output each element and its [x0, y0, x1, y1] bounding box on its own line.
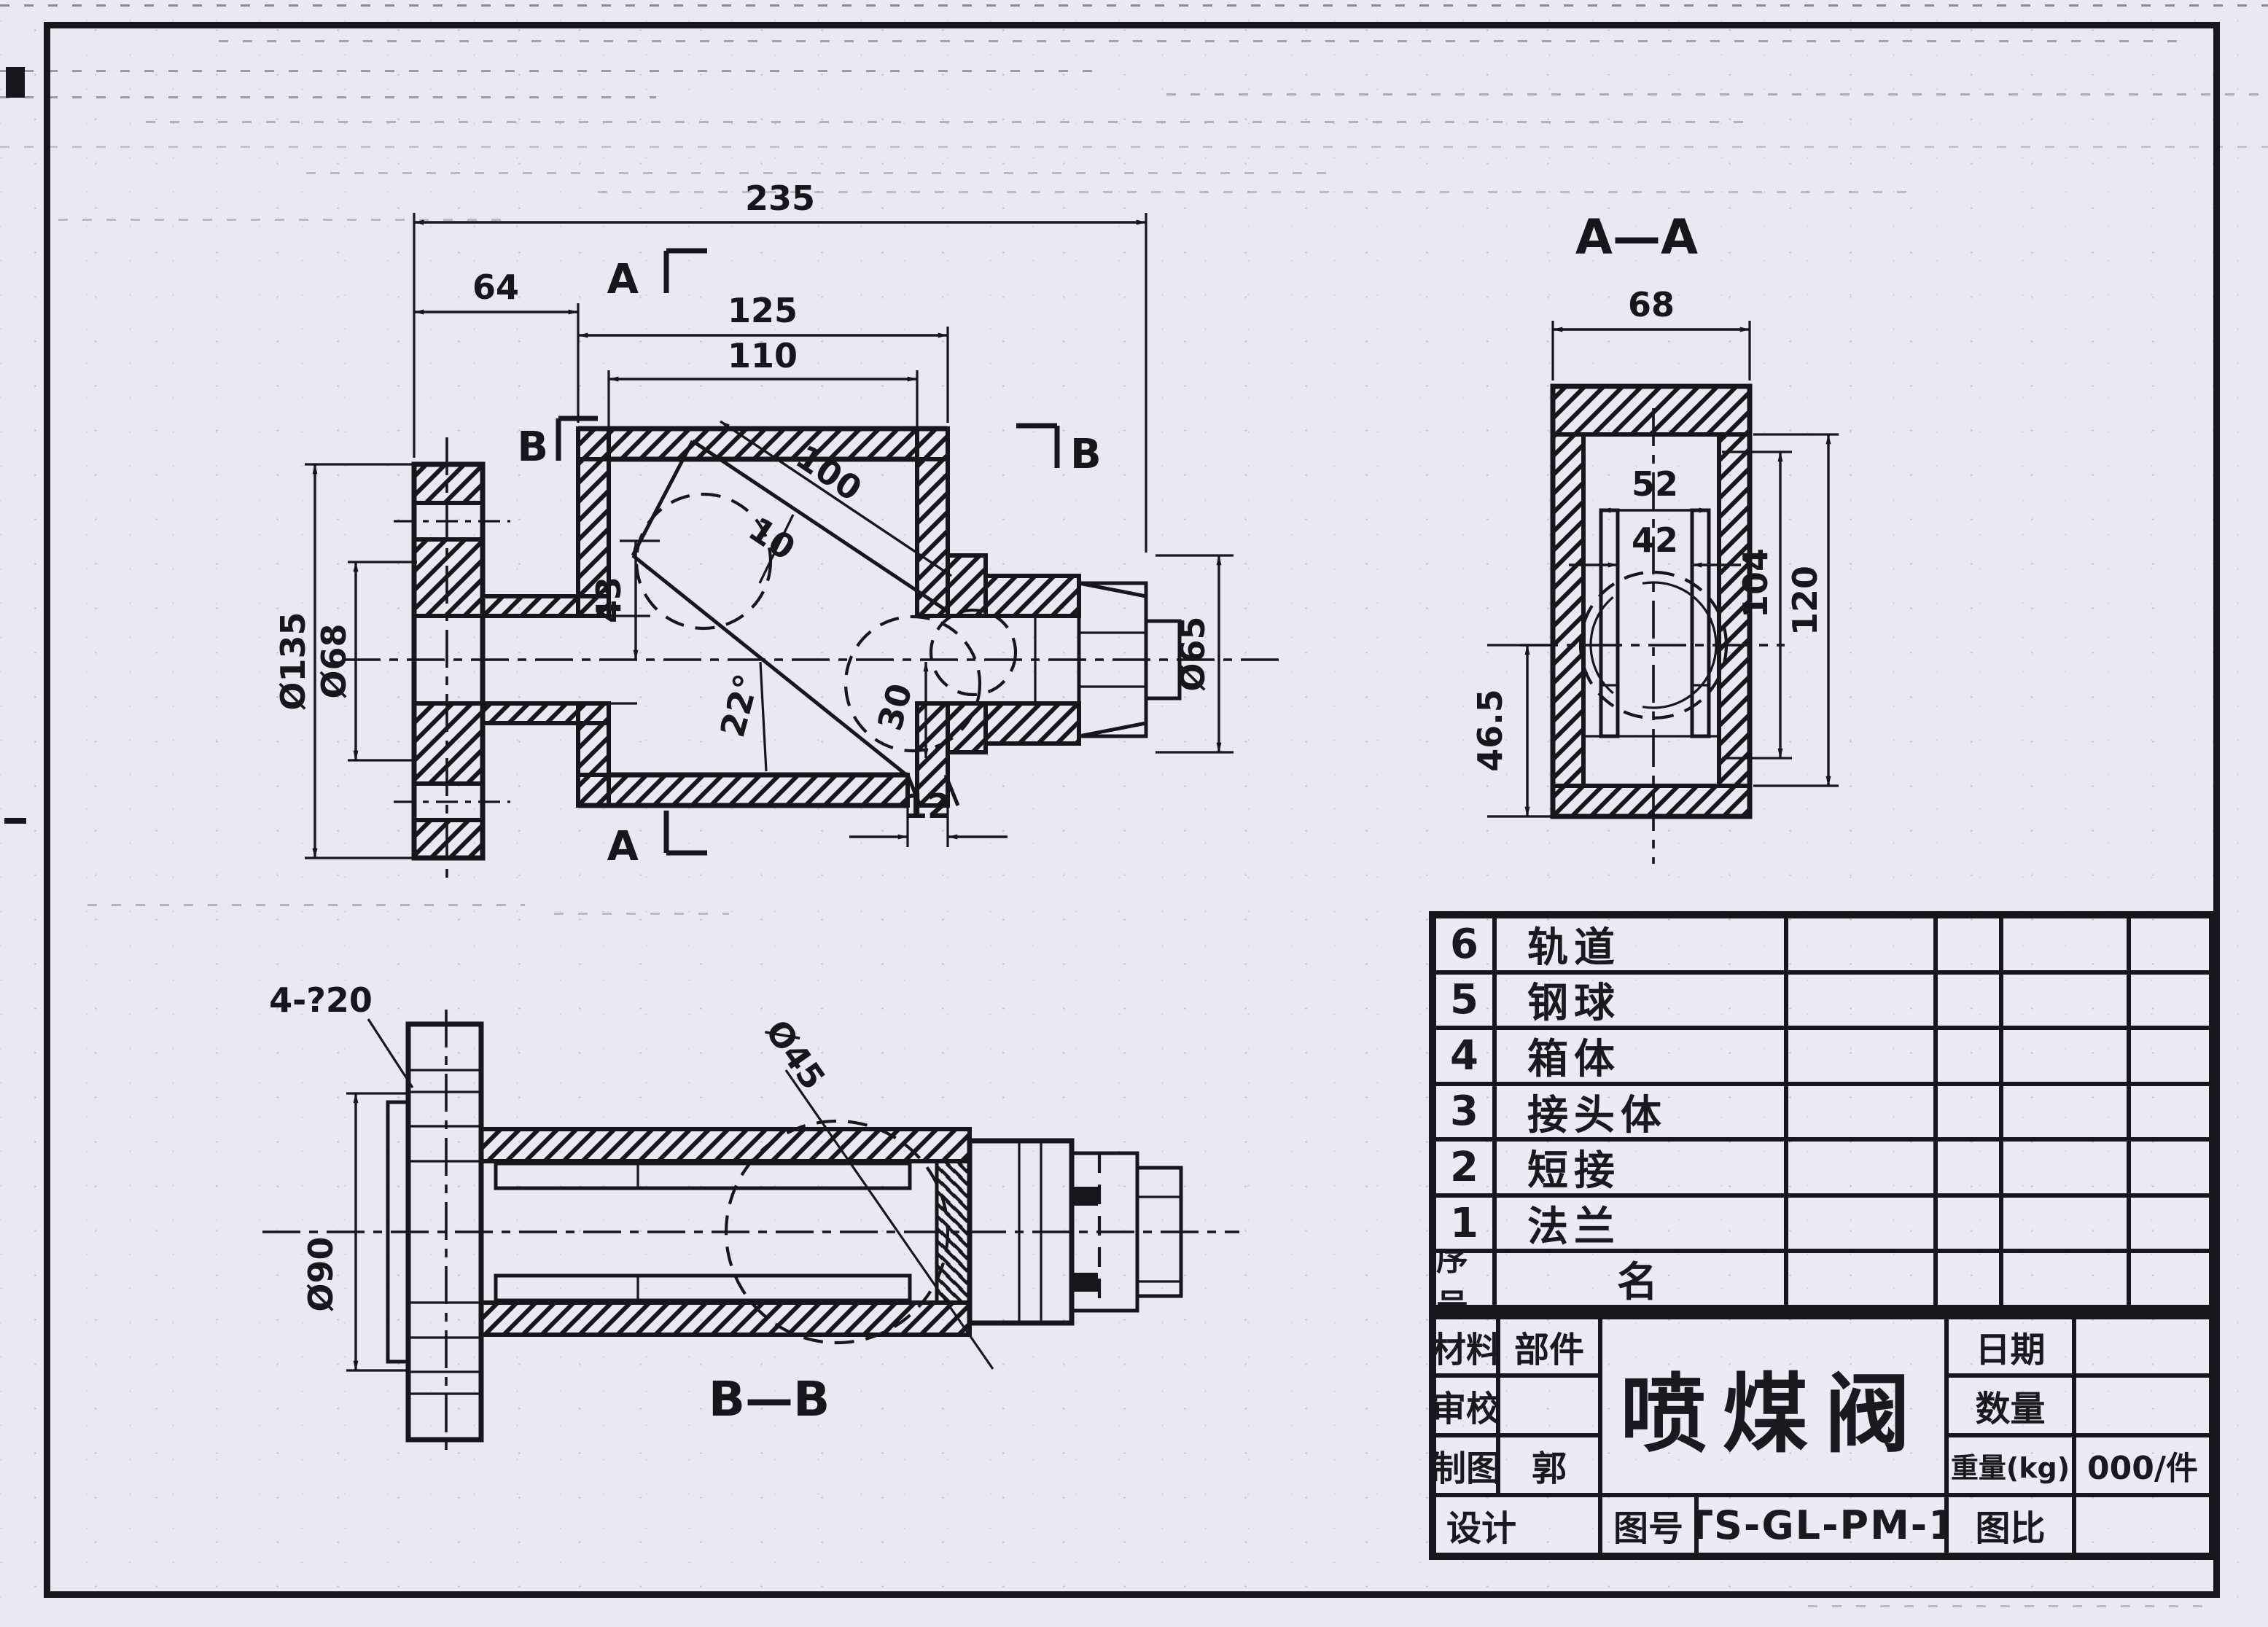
- label-drawn: 制图: [1434, 1435, 1498, 1495]
- marker-a-top: A: [607, 256, 639, 303]
- empty-cell: [1936, 972, 2001, 1029]
- empty-cell: [1786, 1028, 1936, 1084]
- empty-cell: [2001, 1195, 2129, 1252]
- empty-cell: [1786, 916, 1936, 972]
- callout-bolts: 4-?20: [269, 980, 373, 1020]
- aa-section-view: A—A 68: [1470, 209, 1839, 864]
- label-date: 日期: [1946, 1317, 2074, 1376]
- part-name: 钢球: [1495, 972, 1786, 1029]
- value-weight: 000/件: [2074, 1435, 2211, 1495]
- empty-cell: [1936, 1251, 2001, 1307]
- part-no: 1: [1434, 1195, 1495, 1252]
- value-scale: [2074, 1495, 2211, 1555]
- ball-seat-crosshatch: [937, 1161, 970, 1303]
- label-scale: 图比: [1946, 1495, 2074, 1555]
- dim-seat: Ø45: [757, 1013, 833, 1096]
- part-name: 短接: [1495, 1139, 1786, 1195]
- empty-cell: [2001, 1251, 2129, 1307]
- dim-exit-width: 12: [904, 787, 951, 826]
- dim-aa-width: 68: [1628, 285, 1675, 324]
- drawing-title: 喷煤阀: [1600, 1317, 1946, 1495]
- empty-cell: [2129, 1139, 2211, 1195]
- empty-cell: [2001, 1028, 2129, 1084]
- empty-cell: [1936, 916, 2001, 972]
- empty-cell: [2001, 972, 2129, 1029]
- label-design: 设计: [1434, 1495, 1600, 1555]
- bb-section-view: B—B 4-?20 Ø90: [262, 980, 1239, 1454]
- empty-cell: [2001, 1084, 2129, 1140]
- dim-drop: 43: [589, 577, 628, 623]
- part-no: 6: [1434, 916, 1495, 972]
- dim-aa-ball: 42: [1632, 520, 1678, 560]
- label-weight: 重量(kg): [1946, 1435, 2074, 1495]
- value-quantity: [2074, 1376, 2211, 1435]
- parts-list-table: 6 轨道 5 钢球 4 箱体 3 接头体 2 短接 1 法兰 序号 名: [1429, 911, 2216, 1312]
- empty-cell: [1936, 1195, 2001, 1252]
- connector-section: [948, 555, 1180, 752]
- dim-box-inner: 110: [728, 336, 798, 375]
- empty-cell: [2129, 1028, 2211, 1084]
- empty-cell: [2129, 1195, 2211, 1252]
- part-name: 接头体: [1495, 1084, 1786, 1140]
- label-quantity: 数量: [1946, 1376, 2074, 1435]
- empty-cell: [1786, 1195, 1936, 1252]
- empty-cell: [1786, 1084, 1936, 1140]
- marker-b-right: B: [1070, 431, 1102, 478]
- label-dwg-no: 图号: [1600, 1495, 1696, 1555]
- empty-cell: [1786, 972, 1936, 1029]
- label-material: 材料: [1434, 1317, 1498, 1376]
- flange-section: [414, 464, 483, 858]
- main-section-view: 235 64 125 110 Ø135 Ø68: [273, 179, 1283, 886]
- dim-aa-total-height: 120: [1785, 566, 1825, 636]
- dim-right-od: Ø65: [1173, 616, 1212, 691]
- dim-aa-rail: 52: [1632, 464, 1678, 504]
- part-no: 2: [1434, 1139, 1495, 1195]
- dim-flange-od: Ø135: [273, 612, 313, 710]
- dim-left-offset: 64: [472, 268, 519, 307]
- header-name: 名: [1495, 1251, 1786, 1307]
- ball-position-dashed: [636, 494, 771, 628]
- angle-extension-line: [760, 662, 766, 771]
- empty-cell: [1786, 1251, 1936, 1307]
- value-dwg-no: TS-GL-PM-1: [1696, 1495, 1946, 1555]
- dim-channel-width: 10: [741, 509, 802, 568]
- dim-overall: 235: [745, 179, 815, 218]
- label-component: 部件: [1498, 1317, 1600, 1376]
- dim-aa-inner-height: 104: [1736, 548, 1775, 618]
- empty-cell: [1936, 1028, 2001, 1084]
- part-name: 法兰: [1495, 1195, 1786, 1252]
- header-no: 序号: [1434, 1251, 1495, 1307]
- dim-box-outer: 125: [728, 291, 798, 330]
- dim-bolt-circle: Ø90: [301, 1236, 340, 1311]
- value-drawn-by: 郭: [1498, 1435, 1600, 1495]
- marker-b-left: B: [517, 424, 548, 471]
- part-no: 5: [1434, 972, 1495, 1029]
- empty-cell: [2001, 916, 2129, 972]
- empty-cell: [2129, 916, 2211, 972]
- empty-cell: [1936, 1084, 2001, 1140]
- part-name: 轨道: [1495, 916, 1786, 972]
- dim-aa-left-height: 46.5: [1470, 689, 1510, 772]
- scanned-engineering-drawing: { "colors": { "paper": "#eae9f1", "ink":…: [0, 0, 2268, 1627]
- empty-cell: [1936, 1139, 2001, 1195]
- part-no: 4: [1434, 1028, 1495, 1084]
- value-review: [1498, 1376, 1600, 1435]
- part-no: 3: [1434, 1084, 1495, 1140]
- empty-cell: [2129, 1251, 2211, 1307]
- empty-cell: [2129, 1084, 2211, 1140]
- label-review: 审校: [1434, 1376, 1498, 1435]
- marker-a-bottom: A: [607, 823, 639, 870]
- empty-cell: [1786, 1139, 1936, 1195]
- empty-cell: [2129, 972, 2211, 1029]
- paper-sheet: 235 64 125 110 Ø135 Ø68: [0, 0, 2268, 1627]
- title-block: 材料 部件 喷煤阀 日期 审校 数量 制图 郭 重量(kg) 000/件 设计 …: [1429, 1312, 2216, 1560]
- empty-cell: [2001, 1139, 2129, 1195]
- dim-flange-bore: Ø68: [314, 623, 354, 698]
- dim-angle: 22°: [712, 670, 767, 741]
- dim-ball-drop: 30: [870, 679, 920, 735]
- bb-title: B—B: [709, 1371, 830, 1427]
- aa-title: A—A: [1575, 209, 1698, 265]
- value-date: [2074, 1317, 2211, 1376]
- part-name: 箱体: [1495, 1028, 1786, 1084]
